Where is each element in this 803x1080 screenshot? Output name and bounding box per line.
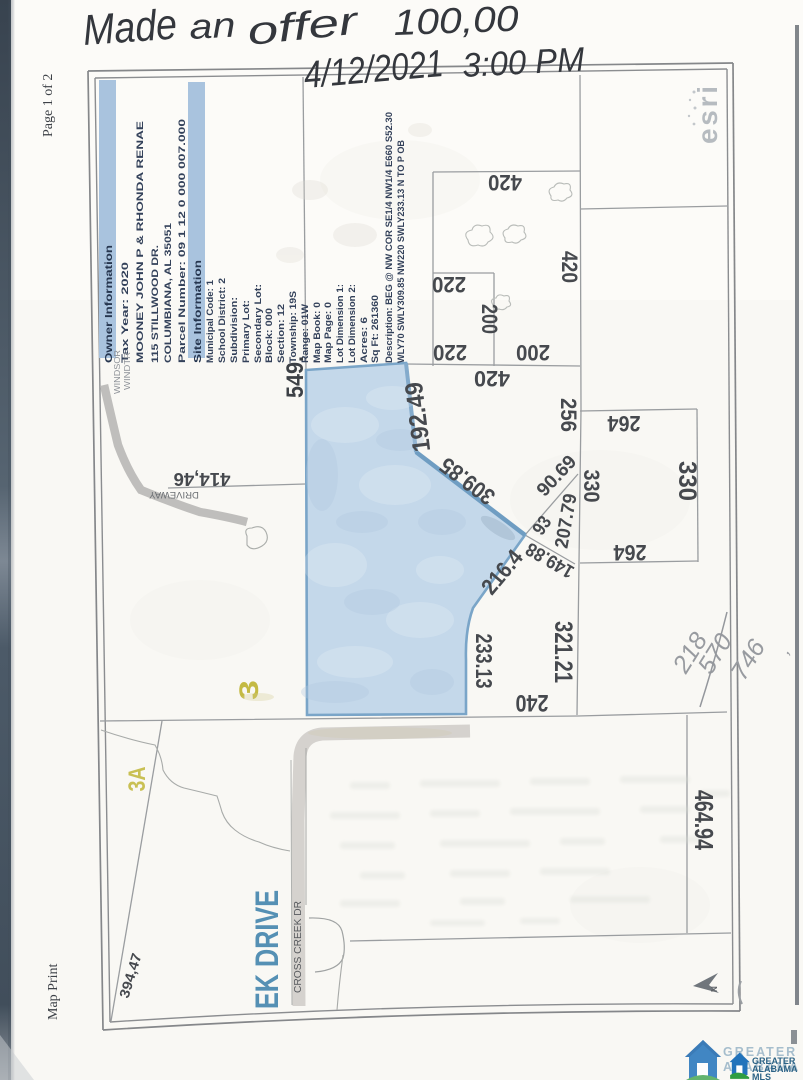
svg-text:464.94: 464.94 xyxy=(689,790,719,850)
svg-text:Owner Information: Owner Information xyxy=(104,245,115,363)
svg-text:200: 200 xyxy=(516,340,550,365)
svg-text:Municipal Code: 1: Municipal Code: 1 xyxy=(205,280,215,363)
svg-text:Lot Dimension 2:: Lot Dimension 2: xyxy=(347,284,357,363)
svg-text:3A: 3A xyxy=(124,767,151,792)
svg-text:WINDTR: WINDTR xyxy=(123,352,132,390)
svg-text:Map Book: 0: Map Book: 0 xyxy=(312,302,322,363)
svg-text:Lot Dimension 1:: Lot Dimension 1: xyxy=(335,284,345,363)
svg-text:School District: 2: School District: 2 xyxy=(217,278,227,363)
svg-text:Subdivision:: Subdivision: xyxy=(229,297,239,363)
svg-text:Primary Lot:: Primary Lot: xyxy=(241,300,251,363)
svg-text:3:00 PM: 3:00 PM xyxy=(461,41,585,85)
svg-text:Made: Made xyxy=(81,1,178,55)
svg-text:MLS: MLS xyxy=(752,1072,771,1080)
svg-text:330: 330 xyxy=(579,470,604,503)
svg-text:Secondary Lot:: Secondary Lot: xyxy=(253,284,263,363)
svg-text:100,00: 100,00 xyxy=(393,0,519,43)
svg-text:Map Page: 0: Map Page: 0 xyxy=(323,302,333,363)
svg-text:WINDSOR: WINDSOR xyxy=(113,350,122,394)
svg-text:220: 220 xyxy=(432,272,466,297)
svg-text:420: 420 xyxy=(488,170,522,195)
svg-text:Range: 01W: Range: 01W xyxy=(300,303,310,363)
svg-text:321.21: 321.21 xyxy=(549,621,577,683)
svg-text:240: 240 xyxy=(516,689,549,716)
svg-text:Section: 12: Section: 12 xyxy=(276,304,286,363)
svg-text:COLUMBIANA, AL 35051: COLUMBIANA, AL 35051 xyxy=(163,223,173,363)
svg-text:an: an xyxy=(188,6,236,47)
svg-text:N: N xyxy=(710,986,719,992)
svg-text:264: 264 xyxy=(613,540,647,565)
svg-text:256: 256 xyxy=(556,398,581,432)
svg-text:MOONEY JOHN P & RHONDA RENAE: MOONEY JOHN P & RHONDA RENAE xyxy=(135,121,145,363)
svg-text:115 STILLWOOD DR.: 115 STILLWOOD DR. xyxy=(150,245,160,363)
svg-text:EK DRIVE: EK DRIVE xyxy=(249,890,285,1009)
svg-text:WLY70 SWLY309.85 NW220 SWLY233: WLY70 SWLY309.85 NW220 SWLY233.13 N TO P… xyxy=(396,140,406,363)
svg-text:Block: 000: Block: 000 xyxy=(264,308,274,363)
svg-text:420: 420 xyxy=(474,366,510,391)
svg-text:Sq Ft: 261360: Sq Ft: 261360 xyxy=(370,295,380,363)
svg-text:220: 220 xyxy=(433,340,467,365)
svg-text:Site Information: Site Information xyxy=(193,260,204,363)
svg-text:Tax Year: 2020: Tax Year: 2020 xyxy=(120,262,130,363)
svg-text:200: 200 xyxy=(477,304,502,334)
svg-text:414,46: 414,46 xyxy=(174,469,231,489)
svg-text:CROSS CREEK DR: CROSS CREEK DR xyxy=(292,901,304,993)
svg-text:Map Print: Map Print xyxy=(46,964,61,1021)
svg-text:330: 330 xyxy=(673,461,701,501)
svg-text:Parcel Number: 09 1 12 0 000 0: Parcel Number: 09 1 12 0 000 007.000 xyxy=(177,119,187,363)
svg-text:Township: 19S: Township: 19S xyxy=(288,291,298,363)
svg-text:DRIVEWAY: DRIVEWAY xyxy=(149,489,199,500)
svg-text:Description: BEG @ NW COR SE1/: Description: BEG @ NW COR SE1/4 NW1/4 E6… xyxy=(384,112,394,363)
svg-text:Page 1 of 2: Page 1 of 2 xyxy=(41,74,56,137)
svg-text:549.: 549. xyxy=(282,356,309,398)
svg-text:264: 264 xyxy=(607,411,641,436)
svg-text:esri: esri xyxy=(692,86,723,144)
svg-text:Acres: 6: Acres: 6 xyxy=(359,317,369,363)
svg-text:420: 420 xyxy=(557,251,582,283)
svg-text:233.13: 233.13 xyxy=(471,634,497,689)
